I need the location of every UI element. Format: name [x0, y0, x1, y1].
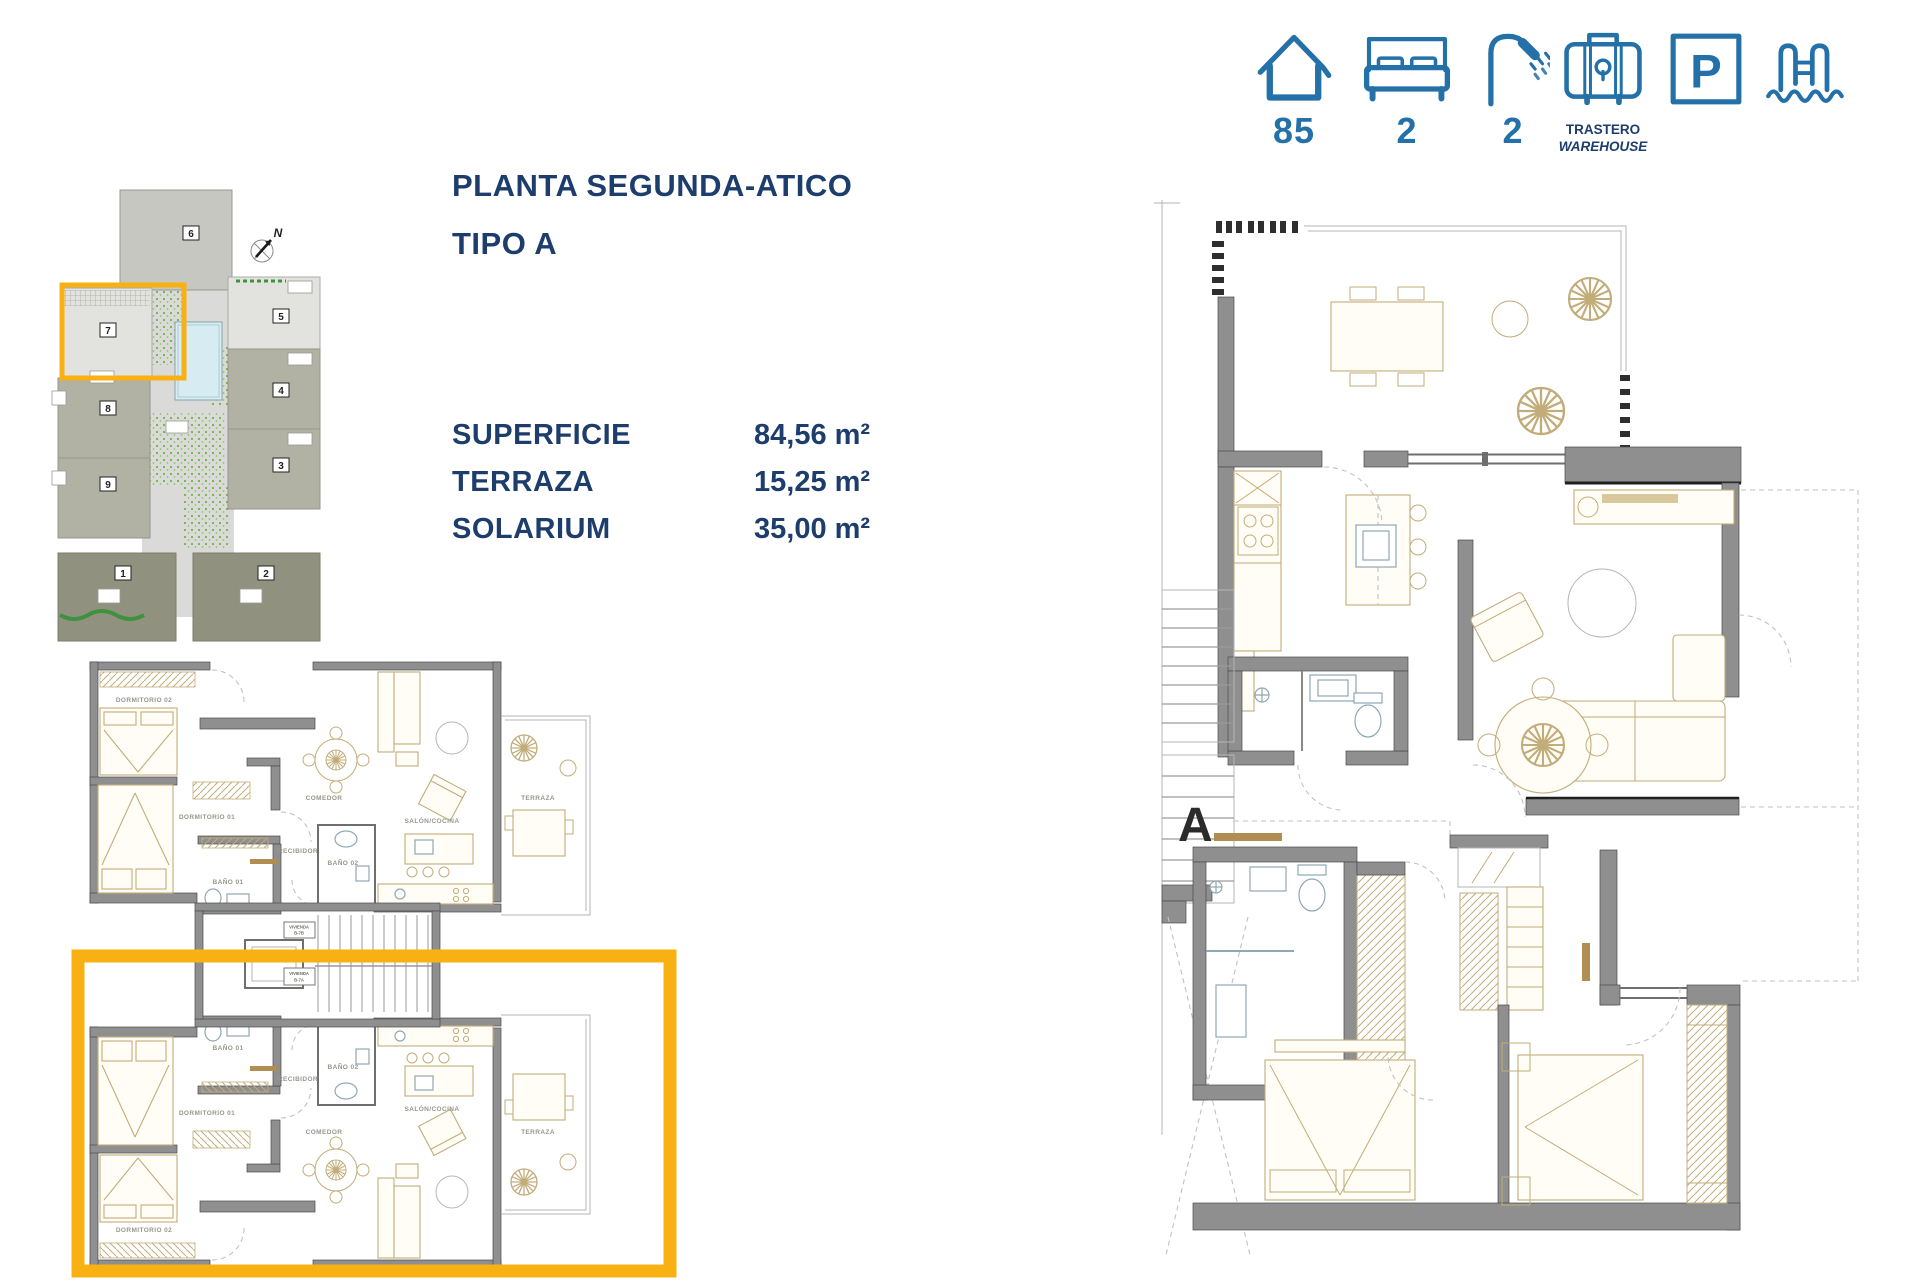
spec-row-terraza: TERRAZA15,25 m²: [452, 466, 870, 513]
amenity-storage: TRASTERO WAREHOUSE: [1552, 24, 1654, 155]
parking-letter: P: [1690, 45, 1721, 98]
pool-icon: [1758, 24, 1854, 108]
stair-tag-2-line1: VIVIENDA: [289, 971, 309, 976]
room-label: BAÑO 02: [328, 858, 359, 867]
room-label: TERRAZA: [521, 795, 555, 802]
warehouse-icon: [1552, 24, 1654, 108]
stair-tag-2-line2: B-7A: [294, 978, 304, 983]
amenity-bedrooms: 2: [1352, 24, 1462, 152]
spec-value: 84,56 m²: [754, 419, 870, 451]
section-line: [1154, 200, 1180, 1135]
site-tag-2: 2: [263, 569, 269, 580]
amenity-bathrooms: 2: [1468, 24, 1558, 152]
storage-label-es: TRASTERO: [1552, 121, 1654, 138]
spec-label: SUPERFICIE: [452, 419, 754, 452]
north-arrow-icon: N: [251, 226, 283, 262]
room-label: BAÑO 02: [328, 1062, 359, 1071]
surface-value: 85: [1246, 110, 1342, 152]
room-labels-upper: DORMITORIO 02 DORMITORIO 01 BAÑO 01 BAÑO…: [116, 697, 555, 886]
storage-label-en: WAREHOUSE: [1552, 138, 1654, 155]
amenity-pool: [1758, 24, 1854, 108]
room-label: COMEDOR: [306, 1129, 343, 1136]
site-tag-1: 1: [120, 569, 126, 580]
stair-tag-1-line2: B-7B: [294, 931, 304, 936]
room-label: COMEDOR: [306, 795, 343, 802]
room-label: BAÑO 01: [213, 877, 244, 886]
room-label: SALÓN/COCINA: [405, 1104, 460, 1113]
detail-floor-plan: A: [1150, 195, 1890, 1285]
bathroom-2: [1228, 657, 1408, 765]
spec-value: 15,25 m²: [754, 466, 870, 498]
site-tag-5: 5: [278, 312, 284, 323]
spec-label: TERRAZA: [452, 466, 754, 499]
bathrooms-value: 2: [1468, 110, 1558, 152]
stair-core: VIVIENDA B-7B VIVIENDA B-7A: [195, 903, 440, 1027]
section-label: A: [1178, 799, 1213, 852]
bedrooms-value: 2: [1352, 110, 1462, 152]
bed-icon: [1352, 24, 1462, 108]
living-area: [1470, 490, 1734, 793]
spec-label: SOLARIUM: [452, 513, 754, 546]
site-tag-8: 8: [105, 404, 111, 415]
site-plan: N 1 2 3 4 5 6 7 8 9: [50, 185, 322, 655]
page-title-line2: TIPO A: [452, 226, 557, 262]
room-label: DORMITORIO 02: [116, 697, 172, 704]
site-tag-6: 6: [188, 229, 194, 240]
amenity-parking: P: [1662, 24, 1750, 108]
stair-tag-1-line1: VIVIENDA: [289, 925, 309, 930]
overview-floor-plan: VIVIENDA B-7B VIVIENDA B-7A DORMITORIO 0…: [60, 660, 680, 1285]
site-tag-4: 4: [278, 386, 284, 397]
page-title-line1: PLANTA SEGUNDA-ATICO: [452, 168, 852, 204]
spec-value: 35,00 m²: [754, 513, 870, 545]
bedroom-zone: [1193, 835, 1740, 1230]
amenity-surface: 85: [1246, 24, 1342, 152]
room-label: SALÓN/COCINA: [405, 816, 460, 825]
room-label: DORMITORIO 02: [116, 1227, 172, 1234]
room-label: TERRAZA: [521, 1129, 555, 1136]
shower-icon: [1468, 24, 1558, 108]
parking-icon: P: [1662, 24, 1750, 108]
spec-row-superficie: SUPERFICIE84,56 m²: [452, 419, 870, 466]
spec-row-solarium: SOLARIUM35,00 m²: [452, 513, 870, 560]
north-label: N: [274, 226, 283, 240]
room-label: DORMITORIO 01: [179, 1110, 235, 1117]
room-label: RECIBIDOR: [278, 848, 318, 855]
room-label: DORMITORIO 01: [179, 814, 235, 821]
terrace-area: [1212, 221, 1630, 463]
room-label: RECIBIDOR: [278, 1076, 318, 1083]
room-label: BAÑO 01: [213, 1043, 244, 1052]
storage-labels: TRASTERO WAREHOUSE: [1552, 121, 1654, 155]
house-icon: [1246, 24, 1342, 108]
site-tag-3: 3: [278, 461, 284, 472]
site-tag-9: 9: [105, 480, 111, 491]
surface-specs: SUPERFICIE84,56 m² TERRAZA15,25 m² SOLAR…: [452, 419, 870, 560]
solarium-boundary: [1739, 490, 1858, 981]
room-labels-lower: DORMITORIO 02 DORMITORIO 01 BAÑO 01 BAÑO…: [116, 1043, 555, 1234]
site-tag-7: 7: [105, 326, 111, 337]
